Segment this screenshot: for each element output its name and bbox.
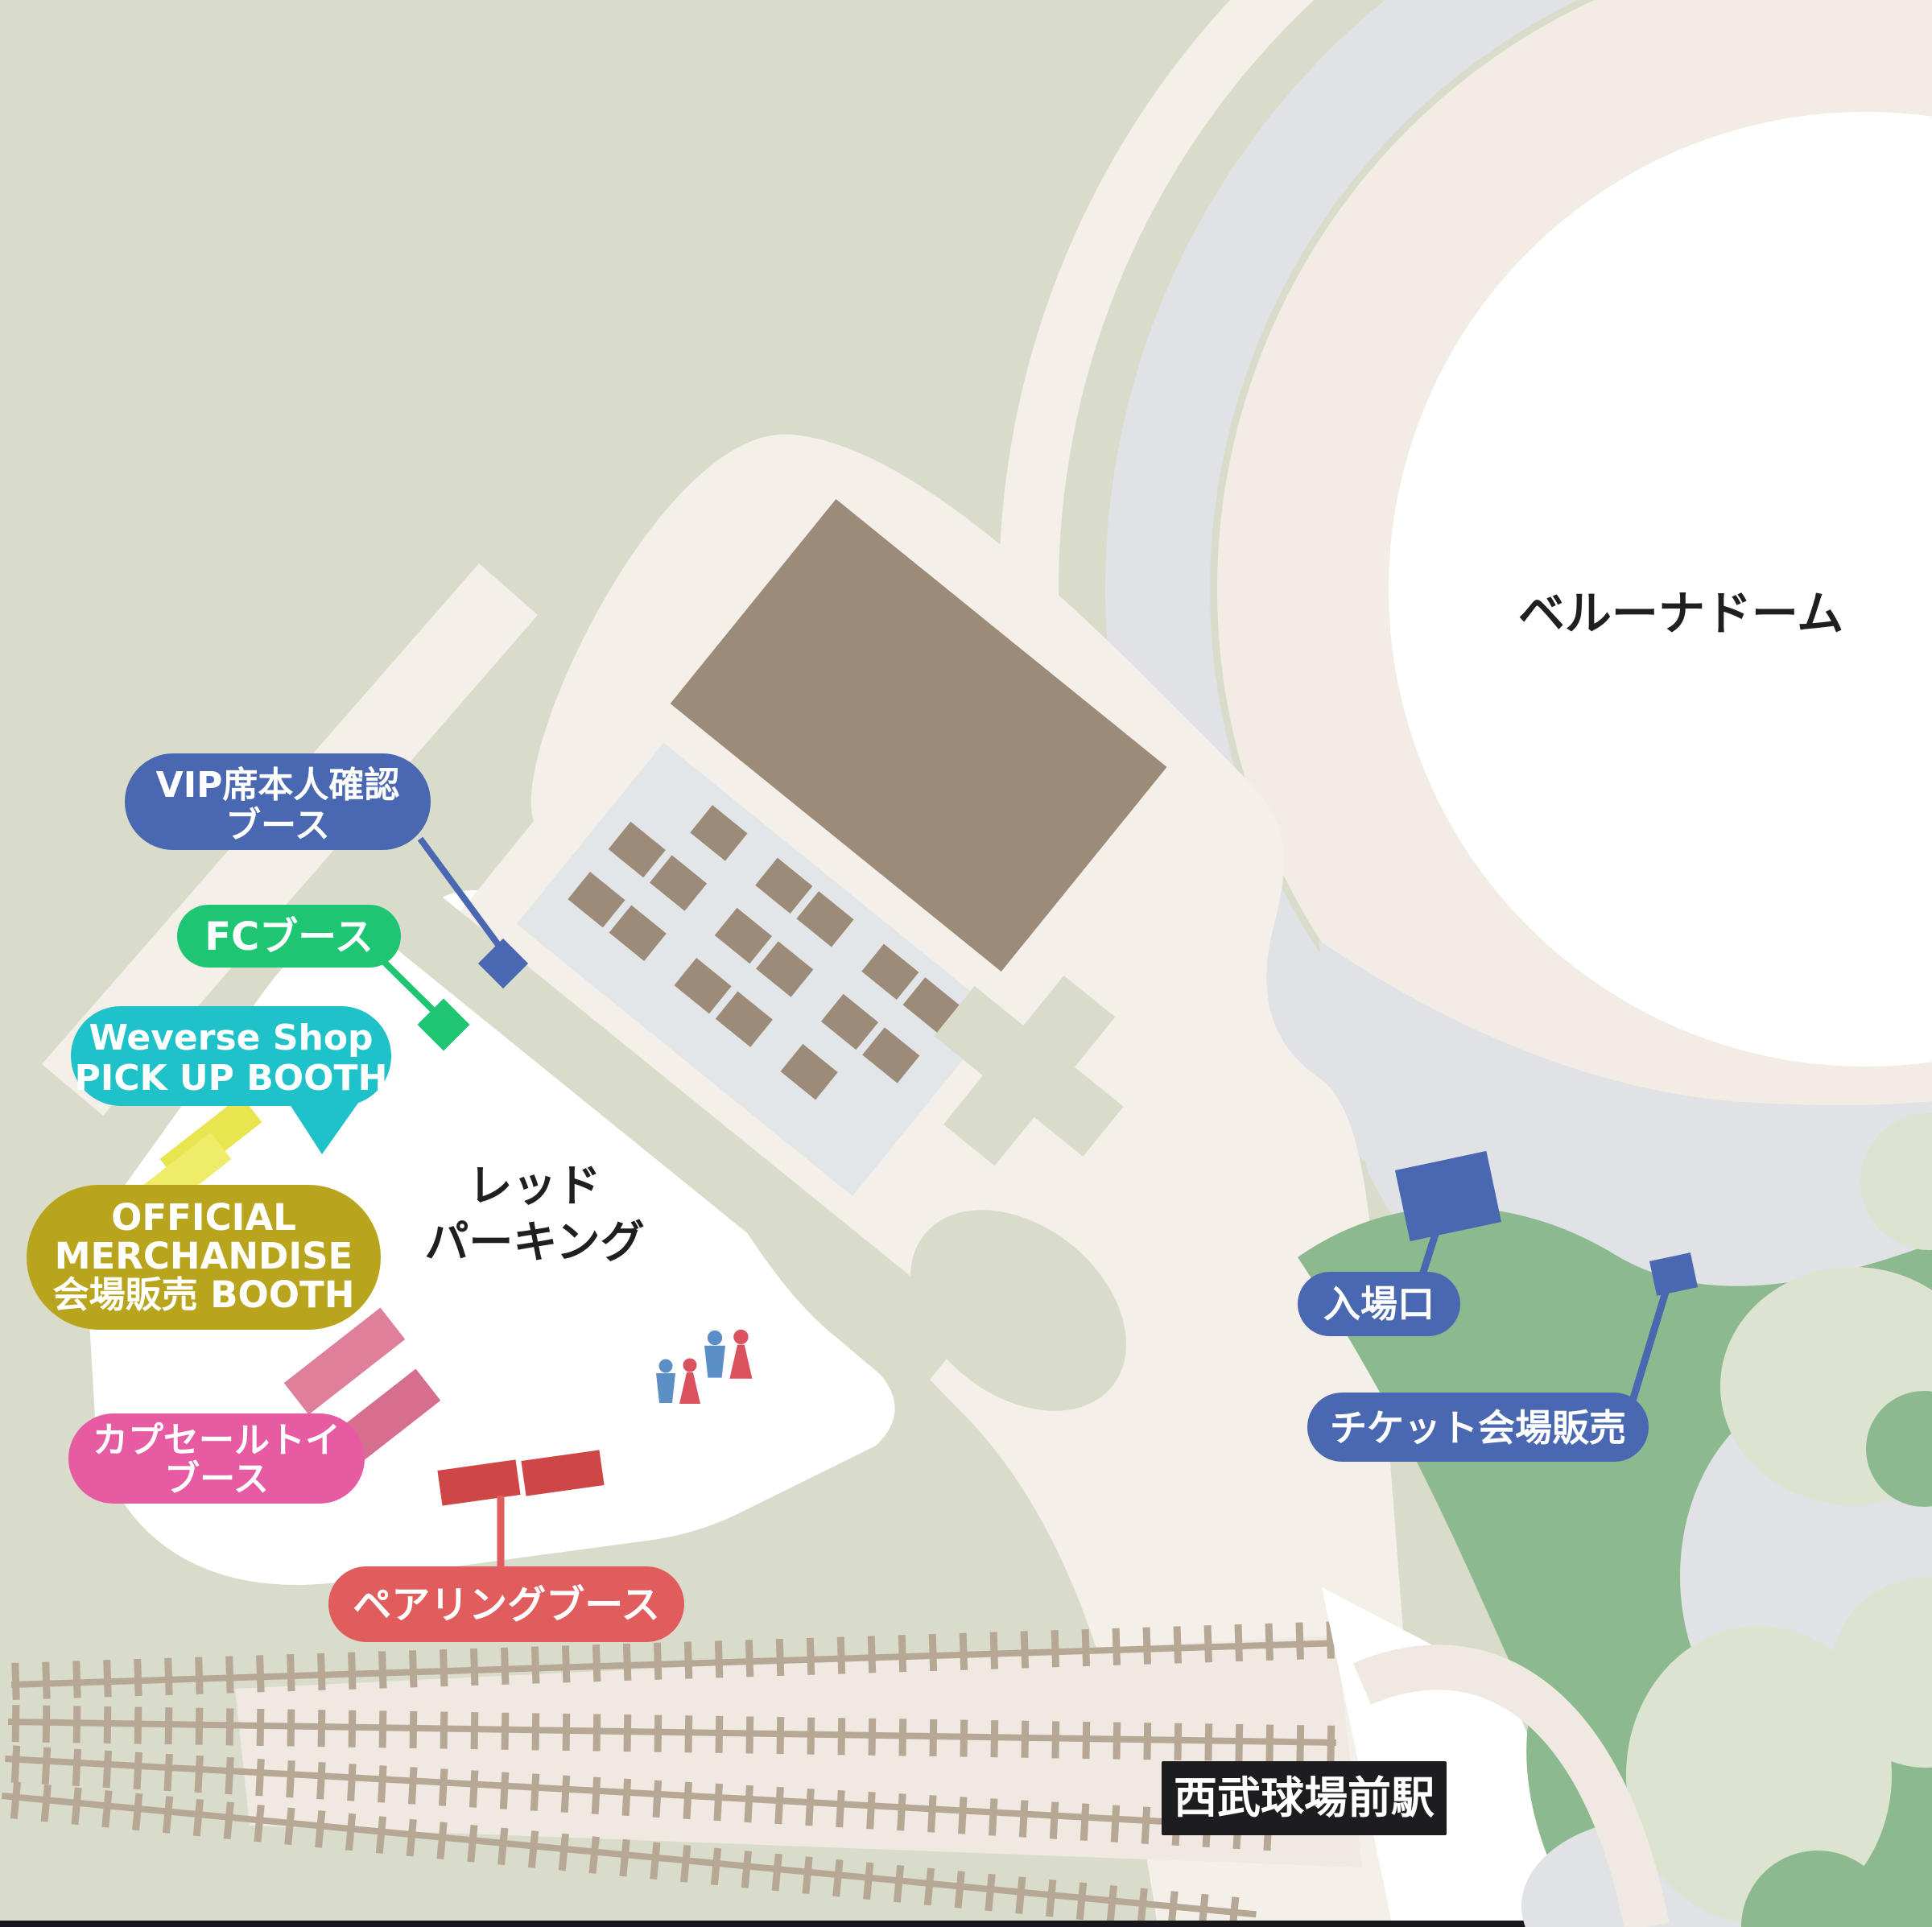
ticket-sales-pill: チケット会場販売 — [1307, 1393, 1649, 1462]
svg-text:PICK UP BOOTH: PICK UP BOOTH — [75, 1058, 388, 1099]
fc-booth-pill: FCブース — [177, 905, 401, 968]
red-parking-label-line2: パーキング — [424, 1216, 644, 1268]
restroom-male-icon — [656, 1360, 675, 1404]
svg-text:Weverse Shop: Weverse Shop — [89, 1017, 373, 1058]
svg-text:西武球場前駅: 西武球場前駅 — [1174, 1772, 1435, 1823]
entrance-pill: 入場口 — [1298, 1272, 1460, 1336]
svg-text:FCブース: FCブース — [204, 914, 374, 959]
svg-text:チケット会場販売: チケット会場販売 — [1330, 1406, 1626, 1450]
svg-text:会場販売 BOOTH: 会場販売 BOOTH — [53, 1273, 355, 1316]
official-merch-pill: OFFICIAL MERCHANDISE 会場販売 BOOTH — [27, 1185, 381, 1330]
svg-text:MERCHANDISE: MERCHANDISE — [55, 1235, 353, 1277]
red-parking-label-line1: レッド — [468, 1160, 601, 1211]
svg-text:カプセールトイ: カプセールトイ — [93, 1420, 341, 1461]
map-edge-line — [0, 1921, 1578, 1927]
svg-text:ブース: ブース — [164, 1459, 269, 1500]
svg-text:ペアリングブース: ペアリングブース — [353, 1582, 660, 1628]
svg-text:VIP席本人確認: VIP席本人確認 — [156, 765, 400, 806]
station-label: 西武球場前駅 — [1162, 1761, 1447, 1835]
svg-text:ブース: ブース — [225, 805, 330, 846]
pairing-booth-pill: ペアリングブース — [328, 1566, 684, 1642]
venue-map: VIP席本人確認 ブース FCブース Weverse Shop PICK UP … — [0, 0, 1932, 1927]
svg-text:入場口: 入場口 — [1323, 1282, 1435, 1326]
vip-booth-pill: VIP席本人確認 ブース — [125, 753, 431, 850]
svg-text:OFFICIAL: OFFICIAL — [111, 1196, 296, 1239]
dome-label: ベルーナドーム — [1518, 586, 1843, 641]
capsule-toy-pill: カプセールトイ ブース — [68, 1413, 365, 1504]
restroom-male-icon — [704, 1331, 725, 1378]
